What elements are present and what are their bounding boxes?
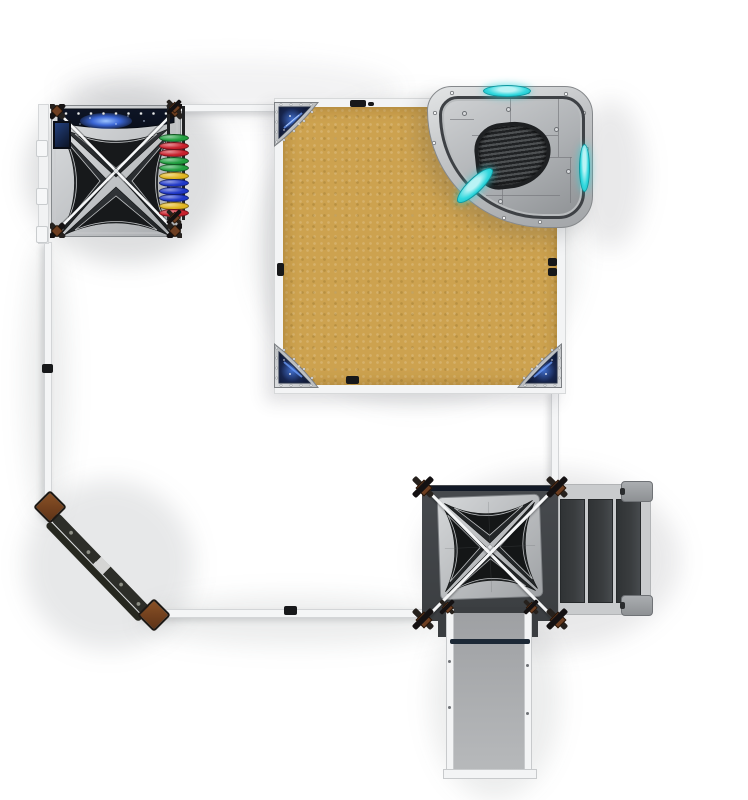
tower-b-deck-trim — [424, 486, 556, 491]
tower-a-bracket — [36, 140, 48, 157]
deck-clamp — [548, 258, 557, 266]
beam-clamp — [284, 606, 297, 615]
panel-rivet — [566, 169, 571, 174]
climber-disc — [159, 134, 189, 142]
panel-rivet — [554, 127, 559, 132]
stair-panel — [616, 499, 641, 603]
galaxy-corner-shield — [512, 338, 564, 390]
perimeter-beam-left — [44, 242, 52, 508]
tower-b-roof — [435, 492, 545, 602]
cyan-lens-top — [483, 85, 531, 97]
disc-climber — [158, 100, 192, 224]
panel-seam — [570, 157, 571, 203]
climber-clamp — [166, 99, 181, 114]
tower-b-clamp — [546, 476, 568, 498]
ramp-clamp — [439, 599, 454, 614]
tower-a-deck-edge — [38, 104, 49, 244]
rail-screw — [526, 664, 529, 667]
perimeter-beam-right — [551, 389, 559, 488]
climber-disc — [159, 179, 189, 187]
stair-panel — [560, 499, 585, 603]
tower-a-bracket — [36, 188, 48, 205]
deck-clamp — [350, 100, 366, 107]
panel-rivet — [506, 107, 511, 112]
climber-disc — [159, 194, 189, 202]
deck-clamp — [368, 102, 374, 106]
beam-clamp — [42, 364, 53, 373]
rail-screw — [448, 706, 451, 709]
climber-disc — [159, 149, 189, 157]
panel-rivet — [498, 199, 503, 204]
panel-seam — [450, 119, 474, 120]
tower-a-galaxy-side-panel — [53, 121, 71, 149]
tower-a-bracket — [36, 226, 48, 243]
tower-b-clamp — [412, 476, 434, 498]
panel-seam — [486, 195, 560, 196]
deck-clamp — [346, 376, 359, 384]
deck-clamp — [277, 263, 284, 276]
ramp-rail-left — [446, 609, 454, 777]
ramp-rail-end — [443, 769, 537, 779]
stair-landing-cap — [621, 481, 653, 502]
deck-clamp — [548, 268, 557, 276]
ramp-rail-right — [524, 611, 532, 777]
stair-panel — [588, 499, 613, 603]
ramp-clamp — [523, 599, 538, 614]
tower-b-clamp — [546, 608, 568, 630]
galaxy-corner-shield — [272, 338, 324, 390]
shadow-blob — [140, 596, 450, 646]
playground-top-view — [0, 0, 748, 800]
panel-rivet — [462, 111, 467, 116]
cyan-lens-right — [579, 144, 590, 192]
galaxy-corner-shield — [272, 100, 324, 152]
ramp-surface — [454, 613, 524, 771]
spaceship-panel — [427, 86, 593, 228]
ramp-crossbar — [450, 639, 530, 644]
rail-screw — [448, 660, 451, 663]
stair-landing-cap — [621, 595, 653, 616]
climber-clamp — [166, 209, 181, 224]
tower-b-clamp — [412, 608, 434, 630]
rail-screw — [526, 712, 529, 715]
climber-disc — [159, 164, 189, 172]
